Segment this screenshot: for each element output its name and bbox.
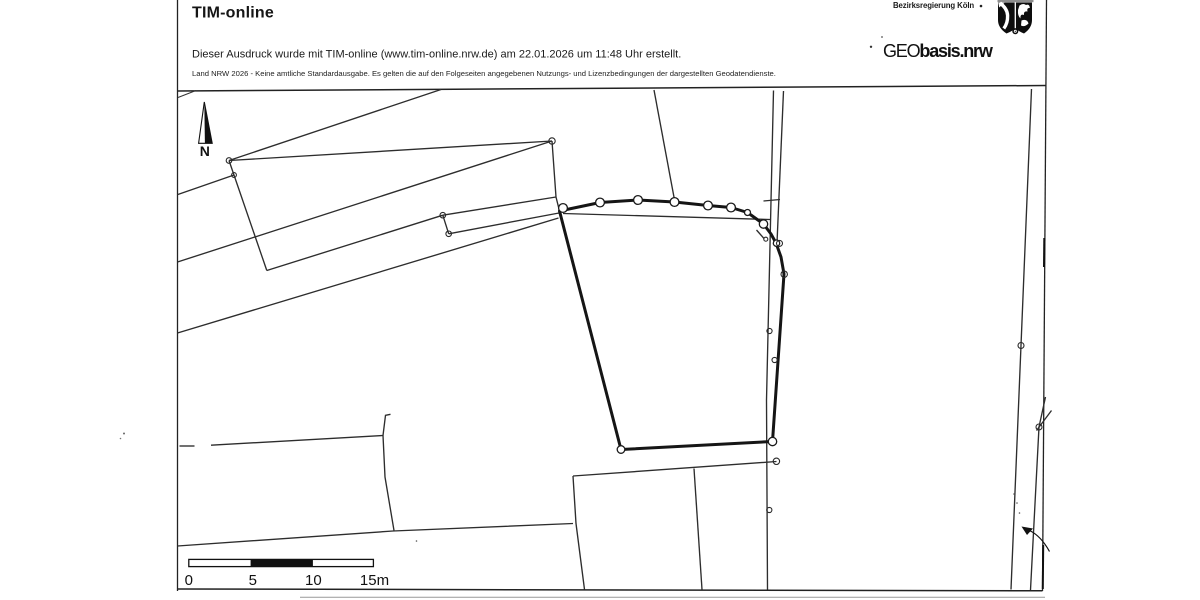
svg-text:15m: 15m — [360, 572, 389, 589]
svg-text:TIM-online: TIM-online — [192, 5, 274, 22]
svg-text:Bezirksregierung Köln: Bezirksregierung Köln — [893, 1, 974, 10]
svg-text:10: 10 — [305, 572, 322, 589]
svg-text:0: 0 — [185, 572, 193, 589]
svg-text:GEObasis.nrw: GEObasis.nrw — [883, 41, 994, 61]
svg-text:N: N — [200, 143, 210, 159]
svg-text:Dieser Ausdruck wurde mit TIM-: Dieser Ausdruck wurde mit TIM-online (ww… — [192, 49, 681, 61]
svg-text:5: 5 — [249, 572, 257, 589]
svg-text:Land NRW 2026 - Keine amtliche: Land NRW 2026 - Keine amtliche Standarda… — [192, 69, 776, 78]
